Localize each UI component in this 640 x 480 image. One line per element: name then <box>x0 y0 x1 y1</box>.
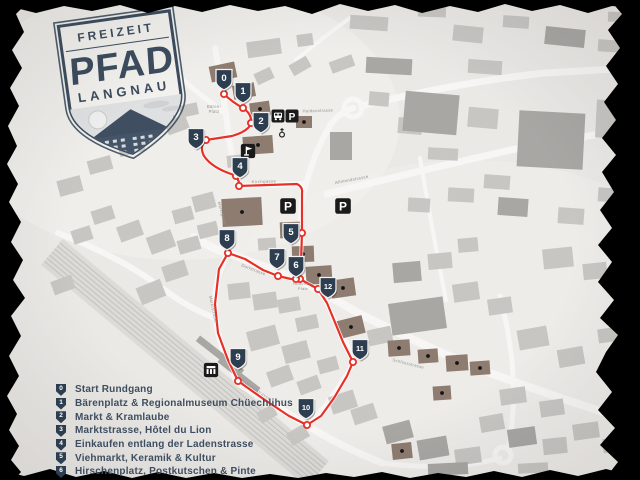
legend-item-label: Bärenplatz & Regionalmuseum Chüechlihus <box>75 398 293 409</box>
legend-item: 2Markt & Kramlaube <box>56 410 293 424</box>
legend-shield-icon: 6 <box>56 466 66 478</box>
legend-item: 1Bärenplatz & Regionalmuseum Chüechlihus <box>56 397 293 411</box>
legend-item: 0Start Rundgang <box>56 383 293 397</box>
legend-item: 6Hirschenplatz, Postkutschen & Pinte <box>56 465 293 479</box>
legend-item: 4Einkaufen entlang der Ladenstrasse <box>56 438 293 452</box>
legend-shield-icon: 4 <box>56 439 66 451</box>
legend-item-label: Start Rundgang <box>75 384 153 395</box>
legend-item-label: Einkaufen entlang der Ladenstrasse <box>75 439 254 450</box>
legend-item: 5Viehmarkt, Keramik & Kultur <box>56 451 293 465</box>
legend-item-label: Hirschenplatz, Postkutschen & Pinte <box>75 466 256 477</box>
legend-item-label: Marktstrasse, Hôtel du Lion <box>75 425 212 436</box>
legend-item-label: Viehmarkt, Keramik & Kultur <box>75 453 216 464</box>
legend-item: 3Marktstrasse, Hôtel du Lion <box>56 424 293 438</box>
legend-shield-icon: 2 <box>56 411 66 423</box>
legend: 0Start Rundgang1Bärenplatz & Regionalmus… <box>56 383 293 479</box>
legend-item-label: Markt & Kramlaube <box>75 412 170 423</box>
map-poster: PPP Bären-PlatzKirchgasseHaldenstrasseAl… <box>0 0 640 480</box>
legend-shield-icon: 1 <box>56 398 66 410</box>
legend-shield-icon: 3 <box>56 425 66 437</box>
legend-shield-icon: 0 <box>56 384 66 396</box>
legend-shield-icon: 5 <box>56 452 66 464</box>
